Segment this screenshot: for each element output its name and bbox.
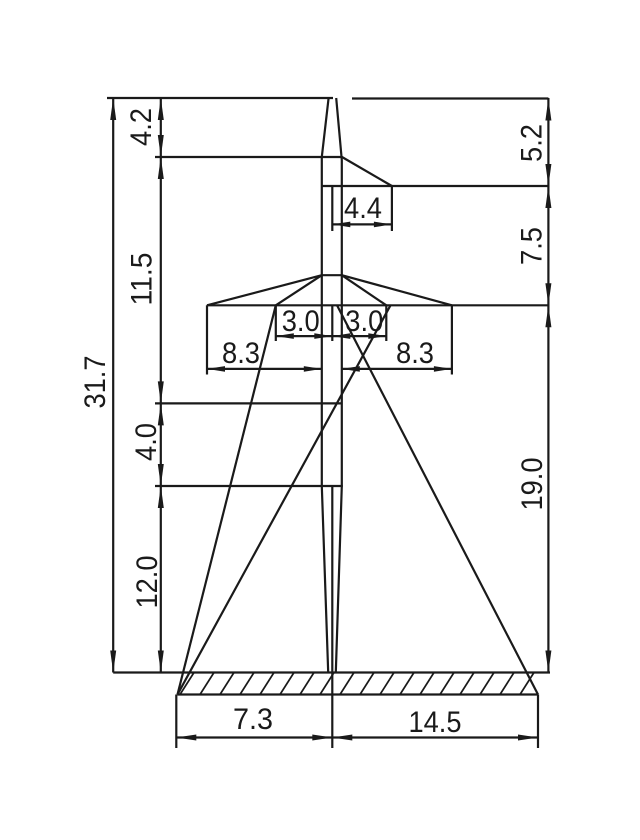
svg-text:3.0: 3.0 (282, 305, 320, 338)
svg-text:4.2: 4.2 (125, 108, 158, 146)
svg-text:4.4: 4.4 (344, 192, 382, 225)
svg-text:4.0: 4.0 (130, 423, 163, 461)
svg-text:8.3: 8.3 (396, 337, 434, 370)
svg-text:19.0: 19.0 (516, 458, 549, 511)
svg-text:12.0: 12.0 (131, 556, 164, 609)
svg-text:11.5: 11.5 (126, 253, 159, 306)
svg-text:31.7: 31.7 (79, 356, 112, 409)
svg-text:7.5: 7.5 (516, 227, 549, 265)
svg-text:14.5: 14.5 (409, 706, 462, 739)
svg-text:3.0: 3.0 (345, 305, 383, 338)
svg-text:8.3: 8.3 (222, 337, 260, 370)
svg-text:7.3: 7.3 (233, 703, 273, 736)
svg-text:5.2: 5.2 (516, 124, 549, 162)
